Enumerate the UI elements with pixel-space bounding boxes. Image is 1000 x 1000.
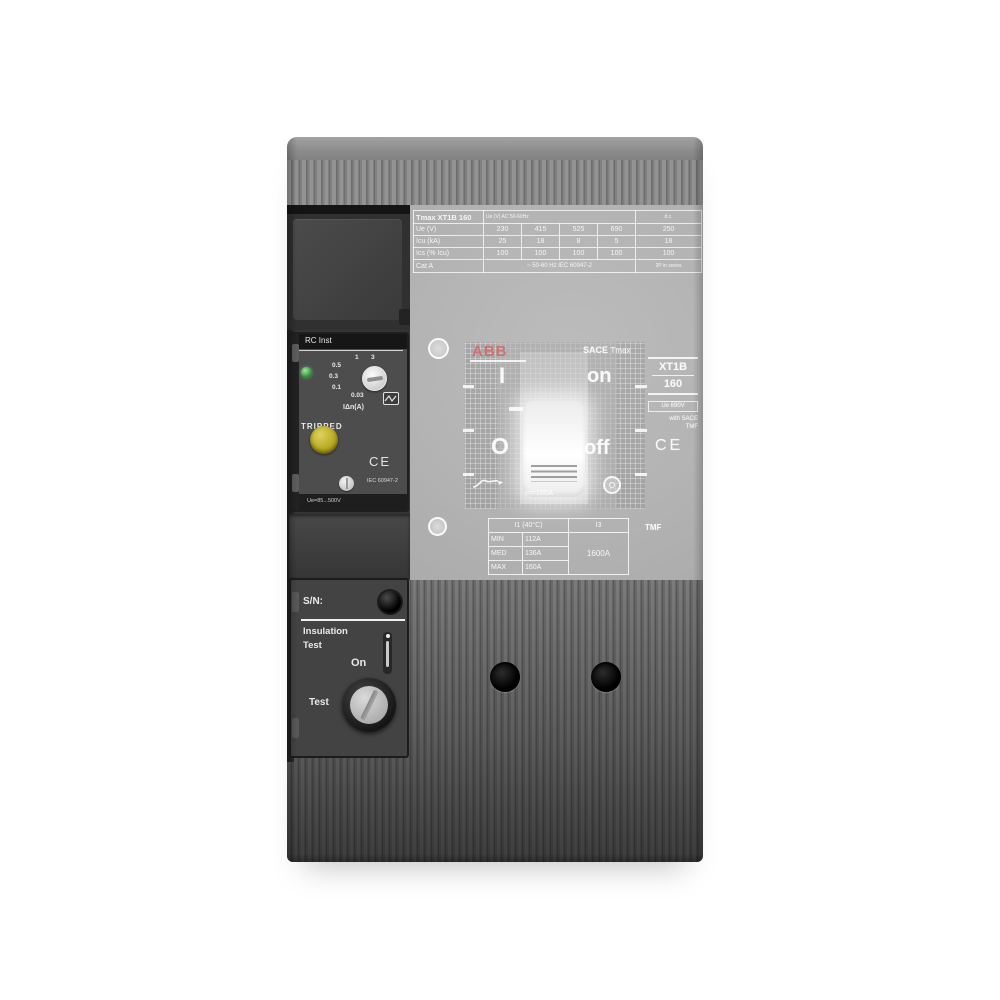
tmax-label: Tmax	[611, 346, 631, 355]
rc-clip-tab[interactable]	[292, 344, 299, 362]
rc-inst-module: RC Inst 1 3 0.5 0.3 0.1 0.03 IΔn(A) TRIP…	[289, 332, 409, 512]
strip-cell: 160A	[523, 561, 569, 575]
approval-seal-icon	[603, 476, 621, 494]
ins-clip-tab[interactable]	[292, 592, 299, 612]
strip-cell: MIN	[489, 533, 523, 547]
dial-value: 0.03	[351, 392, 364, 399]
nameplate-title: Tmax XT1B 160	[414, 211, 484, 224]
model-label: XT1B	[648, 359, 698, 375]
rc-title-bar: RC Inst	[299, 334, 407, 349]
plate-inner-panel	[293, 219, 402, 320]
on-label: On	[351, 657, 366, 669]
nameplate-series-note: 2P in series	[636, 260, 702, 273]
plate-latch-tab[interactable]	[399, 309, 410, 325]
strip-cell: 136A	[523, 547, 569, 561]
scale-tick	[635, 385, 647, 388]
nameplate-row-label: Ics (% Icu)	[414, 248, 484, 260]
serial-number-label: S/N:	[303, 596, 323, 607]
rc-bottom-strip: Ue=85...500V	[299, 494, 407, 510]
nameplate-header-note: Ue (V) AC 50-60Hz	[484, 211, 636, 224]
mounting-hole-icon	[591, 662, 621, 692]
nameplate-cell: 250	[636, 224, 702, 236]
sn-underline	[301, 619, 405, 621]
sace-tmax-label: SACE Tmax	[583, 345, 631, 355]
nameplate-cell: 100	[560, 248, 598, 260]
scale-tick	[635, 429, 647, 432]
dial-value: 1	[355, 354, 359, 361]
dial-value: 3	[371, 354, 375, 361]
nameplate-cell: 8	[560, 236, 598, 248]
i3-value: 1600A	[569, 533, 629, 575]
rating-label: 160	[648, 376, 698, 392]
abb-logo-underline	[470, 360, 526, 362]
thermal-settings-table: I1 (40°C) I3 MIN 112A 1600A MED 136A MAX…	[488, 518, 629, 575]
residual-current-icon	[383, 392, 399, 405]
dial-value: 0.3	[329, 373, 338, 380]
plate-top-strip	[287, 205, 410, 214]
face-note1: with SACE	[648, 416, 698, 422]
nameplate-cell: 100	[522, 248, 560, 260]
position-on-label: on	[587, 365, 611, 388]
test-knob[interactable]	[342, 678, 396, 732]
insulation-label-line1: Insulation	[303, 626, 348, 637]
nameplate-cell: 690	[598, 224, 636, 236]
dial-value: 0.5	[332, 362, 341, 369]
model-box: XT1B 160	[648, 357, 698, 395]
top-ribbed-band	[287, 160, 703, 207]
test-indicator-button[interactable]	[379, 591, 401, 613]
strip-cell: MAX	[489, 561, 523, 575]
rc-status-led	[301, 367, 312, 378]
handle-grip-lines	[531, 465, 577, 482]
ins-clip-tab[interactable]	[292, 718, 299, 738]
mounting-hole-icon	[490, 662, 520, 692]
nameplate-table: Tmax XT1B 160 Ue (V) AC 50-60Hz d.c. Ue …	[413, 210, 702, 273]
scale-tick	[635, 473, 647, 476]
nameplate-cat: Cat A	[414, 260, 484, 273]
nameplate-row-label: Ue (V)	[414, 224, 484, 236]
rc-screw-icon	[339, 476, 354, 491]
test-label: Test	[309, 697, 329, 708]
nameplate-cell: 100	[636, 248, 702, 260]
sensitivity-dial[interactable]	[362, 366, 387, 391]
rc-title: RC Inst	[305, 336, 332, 345]
face-ce-mark: CE	[655, 437, 683, 455]
trip-curve-icon	[471, 475, 505, 491]
insulation-test-module: S/N: Insulation Test On Test	[289, 578, 409, 758]
nameplate-row-label: Icu (kA)	[414, 236, 484, 248]
nameplate-cell: 230	[484, 224, 522, 236]
rc-iec-label: IEC 60947-2	[367, 478, 398, 484]
insulation-label-line2: Test	[303, 640, 322, 651]
face-screw-top-icon	[428, 338, 449, 359]
nameplate-cell: 18	[636, 236, 702, 248]
i1-header: I1 (40°C)	[489, 519, 569, 533]
nameplate-cell: 100	[598, 248, 636, 260]
rc-ue-label: Ue=85...500V	[307, 498, 341, 504]
nameplate-cell: 25	[484, 236, 522, 248]
nameplate-cell: 18	[522, 236, 560, 248]
strip-screw-icon	[428, 517, 447, 536]
nameplate-cell: 415	[522, 224, 560, 236]
blank-cover-plate	[287, 205, 410, 330]
ue-box: Ue 690V	[648, 401, 698, 412]
nameplate-cell: 5	[598, 236, 636, 248]
nameplate-freq: ~ 50-60 Hz IEC 60947-2	[484, 260, 636, 273]
trip-unit-type-label: TMF	[645, 523, 661, 532]
abb-logo: ABB	[472, 343, 508, 360]
dial-unit-label: IΔn(A)	[343, 404, 364, 411]
strip-cell: 112A	[523, 533, 569, 547]
strip-cell: MED	[489, 547, 523, 561]
circuit-breaker-photo: Tmax XT1B 160 Ue (V) AC 50-60Hz d.c. Ue …	[287, 137, 703, 862]
i3-header: I3	[569, 519, 629, 533]
position-o-label: O	[491, 433, 509, 460]
rc-ce-mark: CE	[369, 454, 391, 469]
position-i-label: I	[499, 363, 505, 389]
rc-title-underline	[299, 350, 403, 351]
nameplate-dc-header: d.c.	[636, 211, 702, 224]
scale-tick	[463, 429, 474, 432]
breaker-handle[interactable]	[523, 401, 585, 497]
scale-tick	[463, 385, 474, 388]
nameplate-cell: 525	[560, 224, 598, 236]
face-note2: TMF	[648, 424, 698, 430]
spacer-panel	[289, 514, 410, 578]
nameplate-cell: 100	[484, 248, 522, 260]
dial-value: 0.1	[332, 384, 341, 391]
selector-lever[interactable]	[383, 632, 392, 674]
rc-clip-tab[interactable]	[292, 474, 299, 492]
in-rating-label: In=160A	[525, 488, 553, 497]
tripped-indicator-button[interactable]	[310, 426, 338, 454]
